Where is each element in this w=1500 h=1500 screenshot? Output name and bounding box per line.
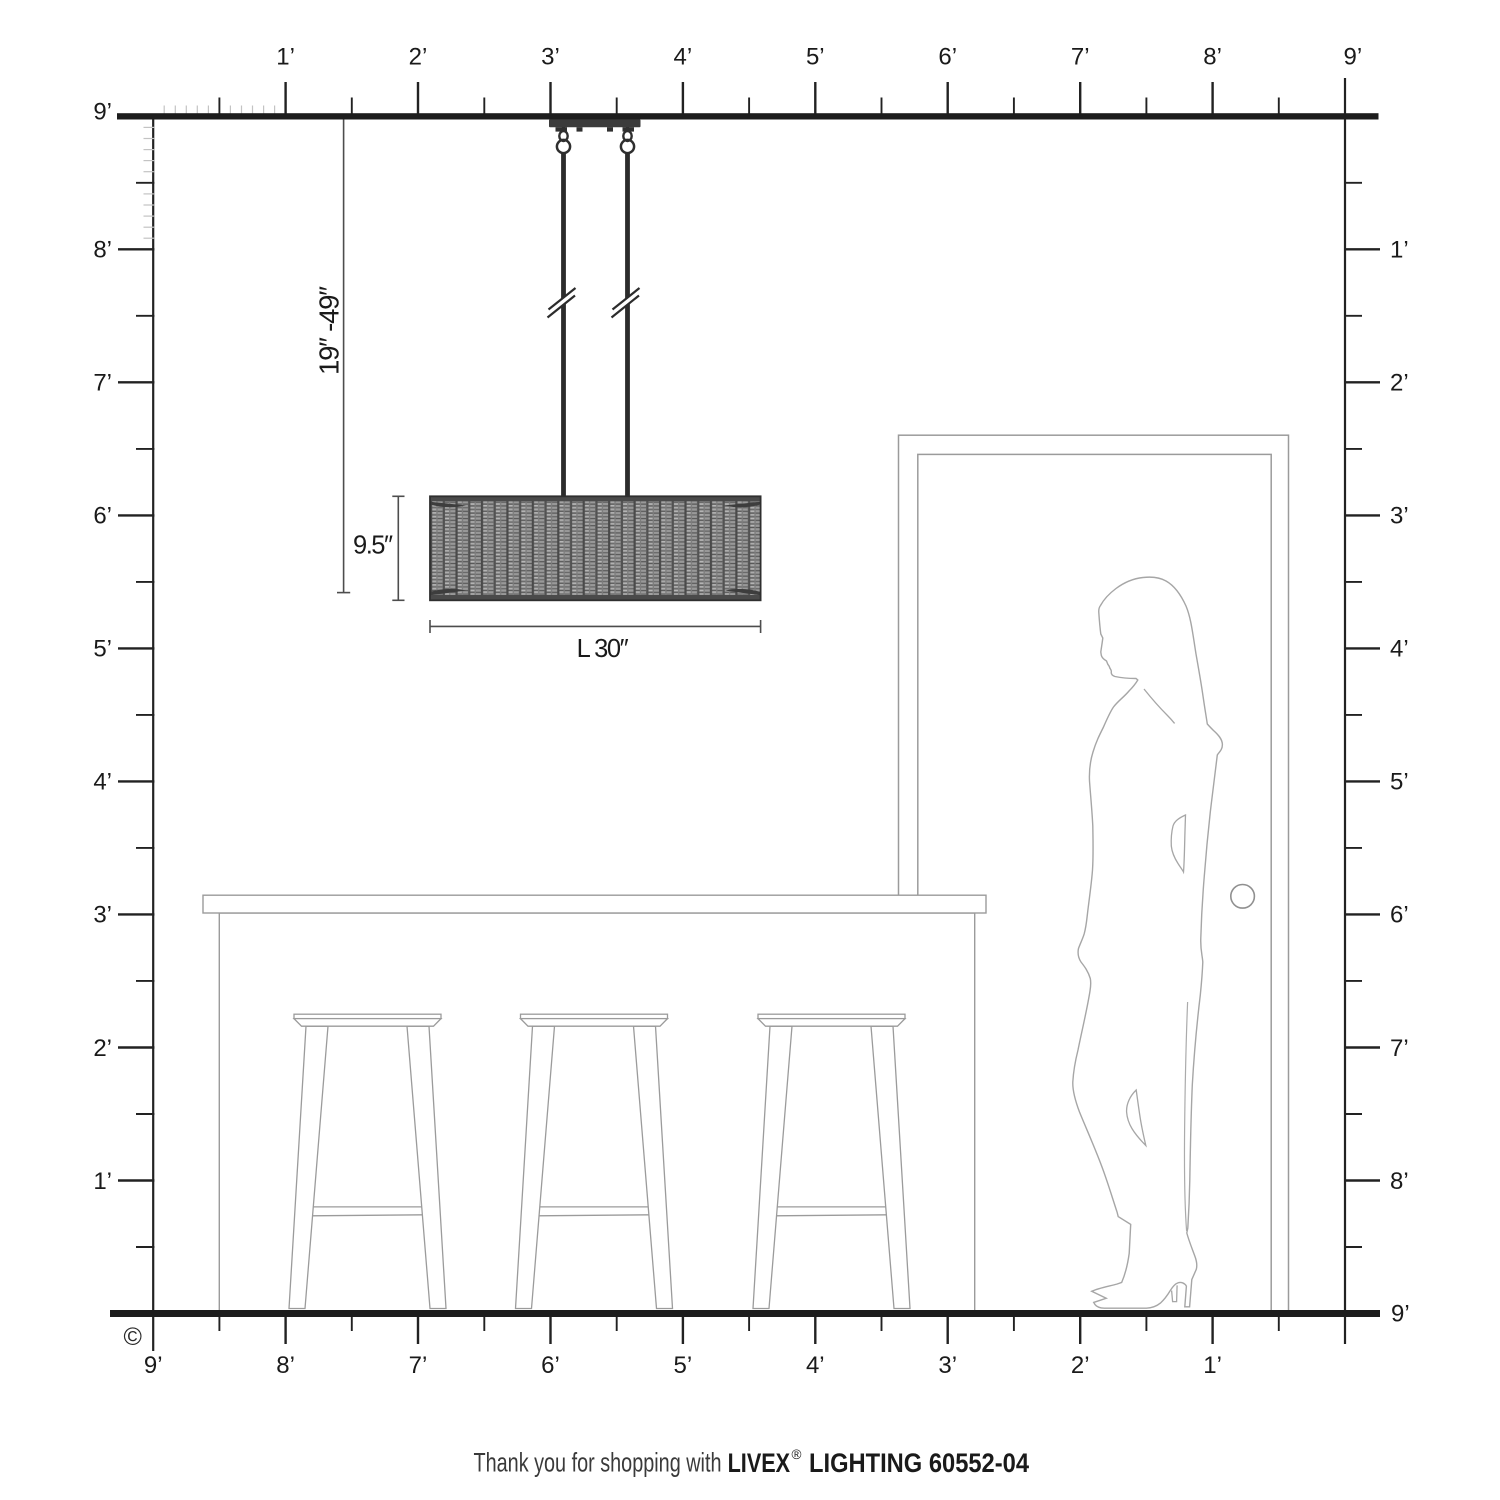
svg-text:8’: 8’ [93, 237, 112, 264]
svg-text:5’: 5’ [806, 44, 825, 71]
svg-text:9.5″: 9.5″ [353, 532, 393, 560]
svg-text:3’: 3’ [541, 44, 560, 71]
svg-text:1’: 1’ [93, 1168, 112, 1195]
svg-text:1’: 1’ [276, 44, 295, 71]
svg-text:19″ -49″: 19″ -49″ [314, 286, 345, 375]
svg-text:6’: 6’ [1390, 902, 1409, 929]
svg-text:7’: 7’ [409, 1352, 428, 1379]
svg-text:7’: 7’ [1071, 44, 1090, 71]
svg-text:®: ® [792, 1447, 802, 1462]
svg-text:7’: 7’ [93, 370, 112, 397]
svg-text:7’: 7’ [1390, 1035, 1409, 1062]
svg-text:LIGHTING 60552-04: LIGHTING 60552-04 [809, 1448, 1029, 1478]
svg-text:9’: 9’ [1344, 44, 1363, 71]
svg-text:9’: 9’ [93, 99, 112, 126]
svg-text:6’: 6’ [938, 44, 957, 71]
svg-text:4’: 4’ [1390, 636, 1409, 663]
svg-text:3’: 3’ [93, 902, 112, 929]
svg-text:L 30″: L 30″ [577, 635, 629, 663]
svg-text:8’: 8’ [1390, 1168, 1409, 1195]
svg-text:8’: 8’ [276, 1352, 295, 1379]
svg-text:4’: 4’ [806, 1352, 825, 1379]
svg-text:2’: 2’ [1071, 1352, 1090, 1379]
svg-text:9’: 9’ [1391, 1301, 1410, 1328]
svg-text:4’: 4’ [93, 769, 112, 796]
svg-text:5’: 5’ [1390, 769, 1409, 796]
svg-text:1’: 1’ [1390, 237, 1409, 264]
svg-text:©: © [124, 1323, 143, 1351]
svg-text:1’: 1’ [1203, 1352, 1222, 1379]
svg-text:9’: 9’ [144, 1352, 163, 1379]
svg-text:Thank you for shopping with: Thank you for shopping with [474, 1447, 722, 1477]
svg-text:6’: 6’ [541, 1352, 560, 1379]
svg-text:2’: 2’ [1390, 370, 1409, 397]
svg-text:4’: 4’ [674, 44, 693, 71]
svg-text:8’: 8’ [1203, 44, 1222, 71]
svg-text:LIVEX: LIVEX [728, 1448, 791, 1478]
svg-text:5’: 5’ [93, 636, 112, 663]
svg-text:6’: 6’ [93, 503, 112, 530]
svg-text:3’: 3’ [938, 1352, 957, 1379]
svg-text:2’: 2’ [409, 44, 428, 71]
svg-text:5’: 5’ [674, 1352, 693, 1379]
svg-text:2’: 2’ [93, 1035, 112, 1062]
svg-text:3’: 3’ [1390, 503, 1409, 530]
